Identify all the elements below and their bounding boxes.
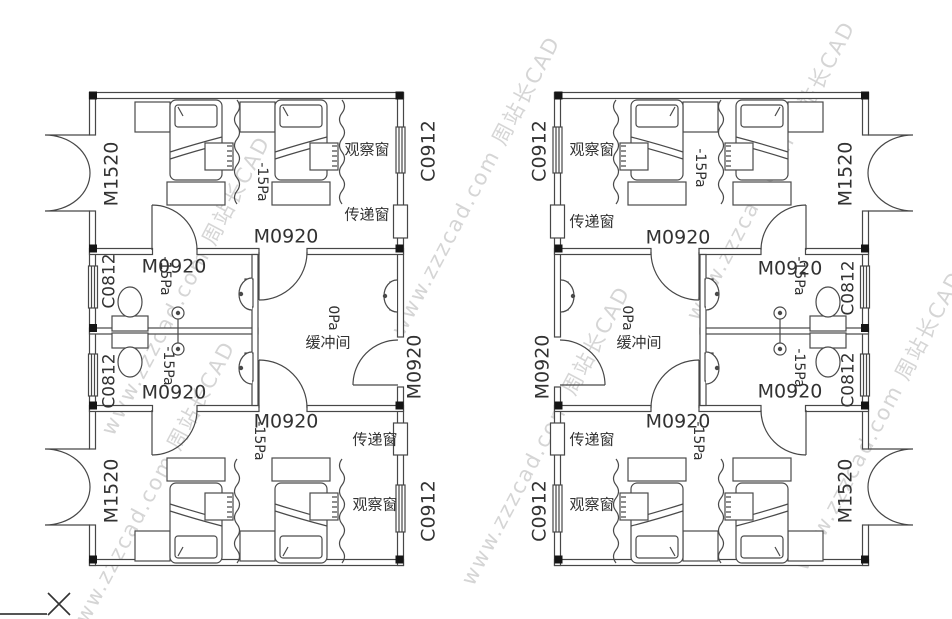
- door-label-m0920-left-buffer-exit: M0920: [406, 335, 425, 400]
- room-label-buffer-left: 缓冲间: [305, 336, 350, 351]
- pressure-right-buffer: 0Pa: [620, 305, 634, 330]
- pass-window-left-top: 传递窗: [344, 208, 389, 223]
- door-label-m0920-right-buffer-top: M0920: [646, 229, 711, 248]
- window-label-c0812-left-top: C0812: [102, 253, 119, 308]
- pass-window-left-bottom: 传递窗: [352, 433, 397, 448]
- door-label-m0920-right-bath-bottom: M0920: [758, 383, 823, 402]
- window-label-c0812-right-bottom: C0812: [841, 352, 858, 407]
- pressure-right-ward-top: -15Pa: [693, 148, 707, 187]
- room-label-buffer-right: 缓冲间: [616, 336, 661, 351]
- door-label-m0920-right-buffer-bottom: M0920: [646, 413, 711, 432]
- door-label-m0920-left-buffer-bottom: M0920: [254, 413, 319, 432]
- door-label-m1520-right-bottom: M1520: [837, 459, 856, 524]
- window-label-c0812-left-bottom: C0812: [102, 353, 119, 408]
- door-label-m0920-right-buffer-exit: M0920: [534, 335, 553, 400]
- pass-window-right-top: 传递窗: [569, 215, 614, 230]
- obs-window-right-top: 观察窗: [569, 143, 614, 158]
- window-label-c0812-right-top: C0812: [841, 260, 858, 315]
- obs-window-left-bottom: 观察窗: [352, 498, 397, 513]
- door-label-m0920-left-bath-bottom: M0920: [142, 384, 207, 403]
- window-label-c0912-left-bottom: C0912: [420, 480, 439, 542]
- door-label-m0920-right-bath-top: M0920: [758, 260, 823, 279]
- window-label-c0912-right-top: C0912: [531, 120, 550, 182]
- cad-floor-plan: www.zzzcad.com 周站长CADwww.zzzcad.com 周站长C…: [0, 0, 952, 619]
- obs-window-right-bottom: 观察窗: [569, 498, 614, 513]
- pass-window-right-bottom: 传递窗: [569, 433, 614, 448]
- obs-window-left-top: 观察窗: [344, 143, 389, 158]
- door-label-m0920-left-buffer-top: M0920: [254, 228, 319, 247]
- pressure-left-ward-top: -15Pa: [255, 162, 269, 201]
- door-label-m1520-left-bottom: M1520: [103, 459, 122, 524]
- pressure-left-bath-bottom: -15Pa: [161, 346, 175, 385]
- window-label-c0912-left-top: C0912: [420, 120, 439, 182]
- window-label-c0912-right-bottom: C0912: [531, 480, 550, 542]
- door-label-m1520-left-top: M1520: [103, 142, 122, 207]
- pressure-left-buffer: 0Pa: [326, 305, 340, 330]
- door-label-m1520-right-top: M1520: [837, 142, 856, 207]
- label-layer: M1520M1520C0812C0812C0912C0912M0920-15Pa…: [0, 0, 952, 619]
- door-label-m0920-left-bath-top: M0920: [142, 258, 207, 277]
